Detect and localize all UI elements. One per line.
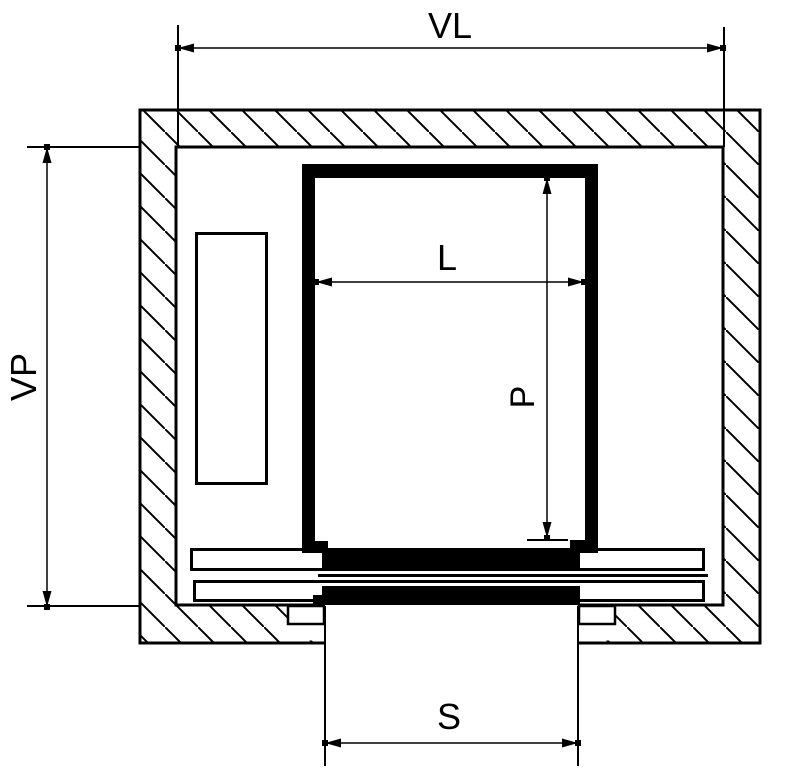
car-door-post-right (570, 540, 598, 553)
label-door-width: S (437, 696, 461, 737)
car-wall-rear (302, 164, 598, 178)
dimension-s (322, 739, 581, 748)
elevator-car-outline (302, 164, 598, 553)
car-wall-right (585, 164, 598, 541)
car-door-post-left (302, 541, 328, 553)
car-door-panel (322, 548, 580, 570)
label-shaft-depth: VP (3, 353, 44, 401)
landing-door-panel-step (313, 595, 322, 605)
drawing-canvas: VL VP L P S (0, 0, 797, 768)
dimension-vp (27, 144, 141, 610)
door-opening-cut (325, 603, 578, 649)
door-jamb-right (579, 606, 615, 624)
door-jamb-left (288, 606, 324, 624)
label-shaft-width: VL (428, 5, 472, 46)
label-car-width: L (437, 237, 457, 278)
dimension-l (313, 278, 587, 287)
label-car-depth: P (504, 386, 542, 409)
landing-door-panel (322, 586, 580, 605)
elevator-shaft-plan-drawing: VL VP L P S (0, 0, 797, 768)
counterweight-box (197, 234, 267, 484)
car-wall-left (302, 164, 315, 543)
door-sills (192, 548, 709, 605)
dimension-p (527, 175, 568, 541)
